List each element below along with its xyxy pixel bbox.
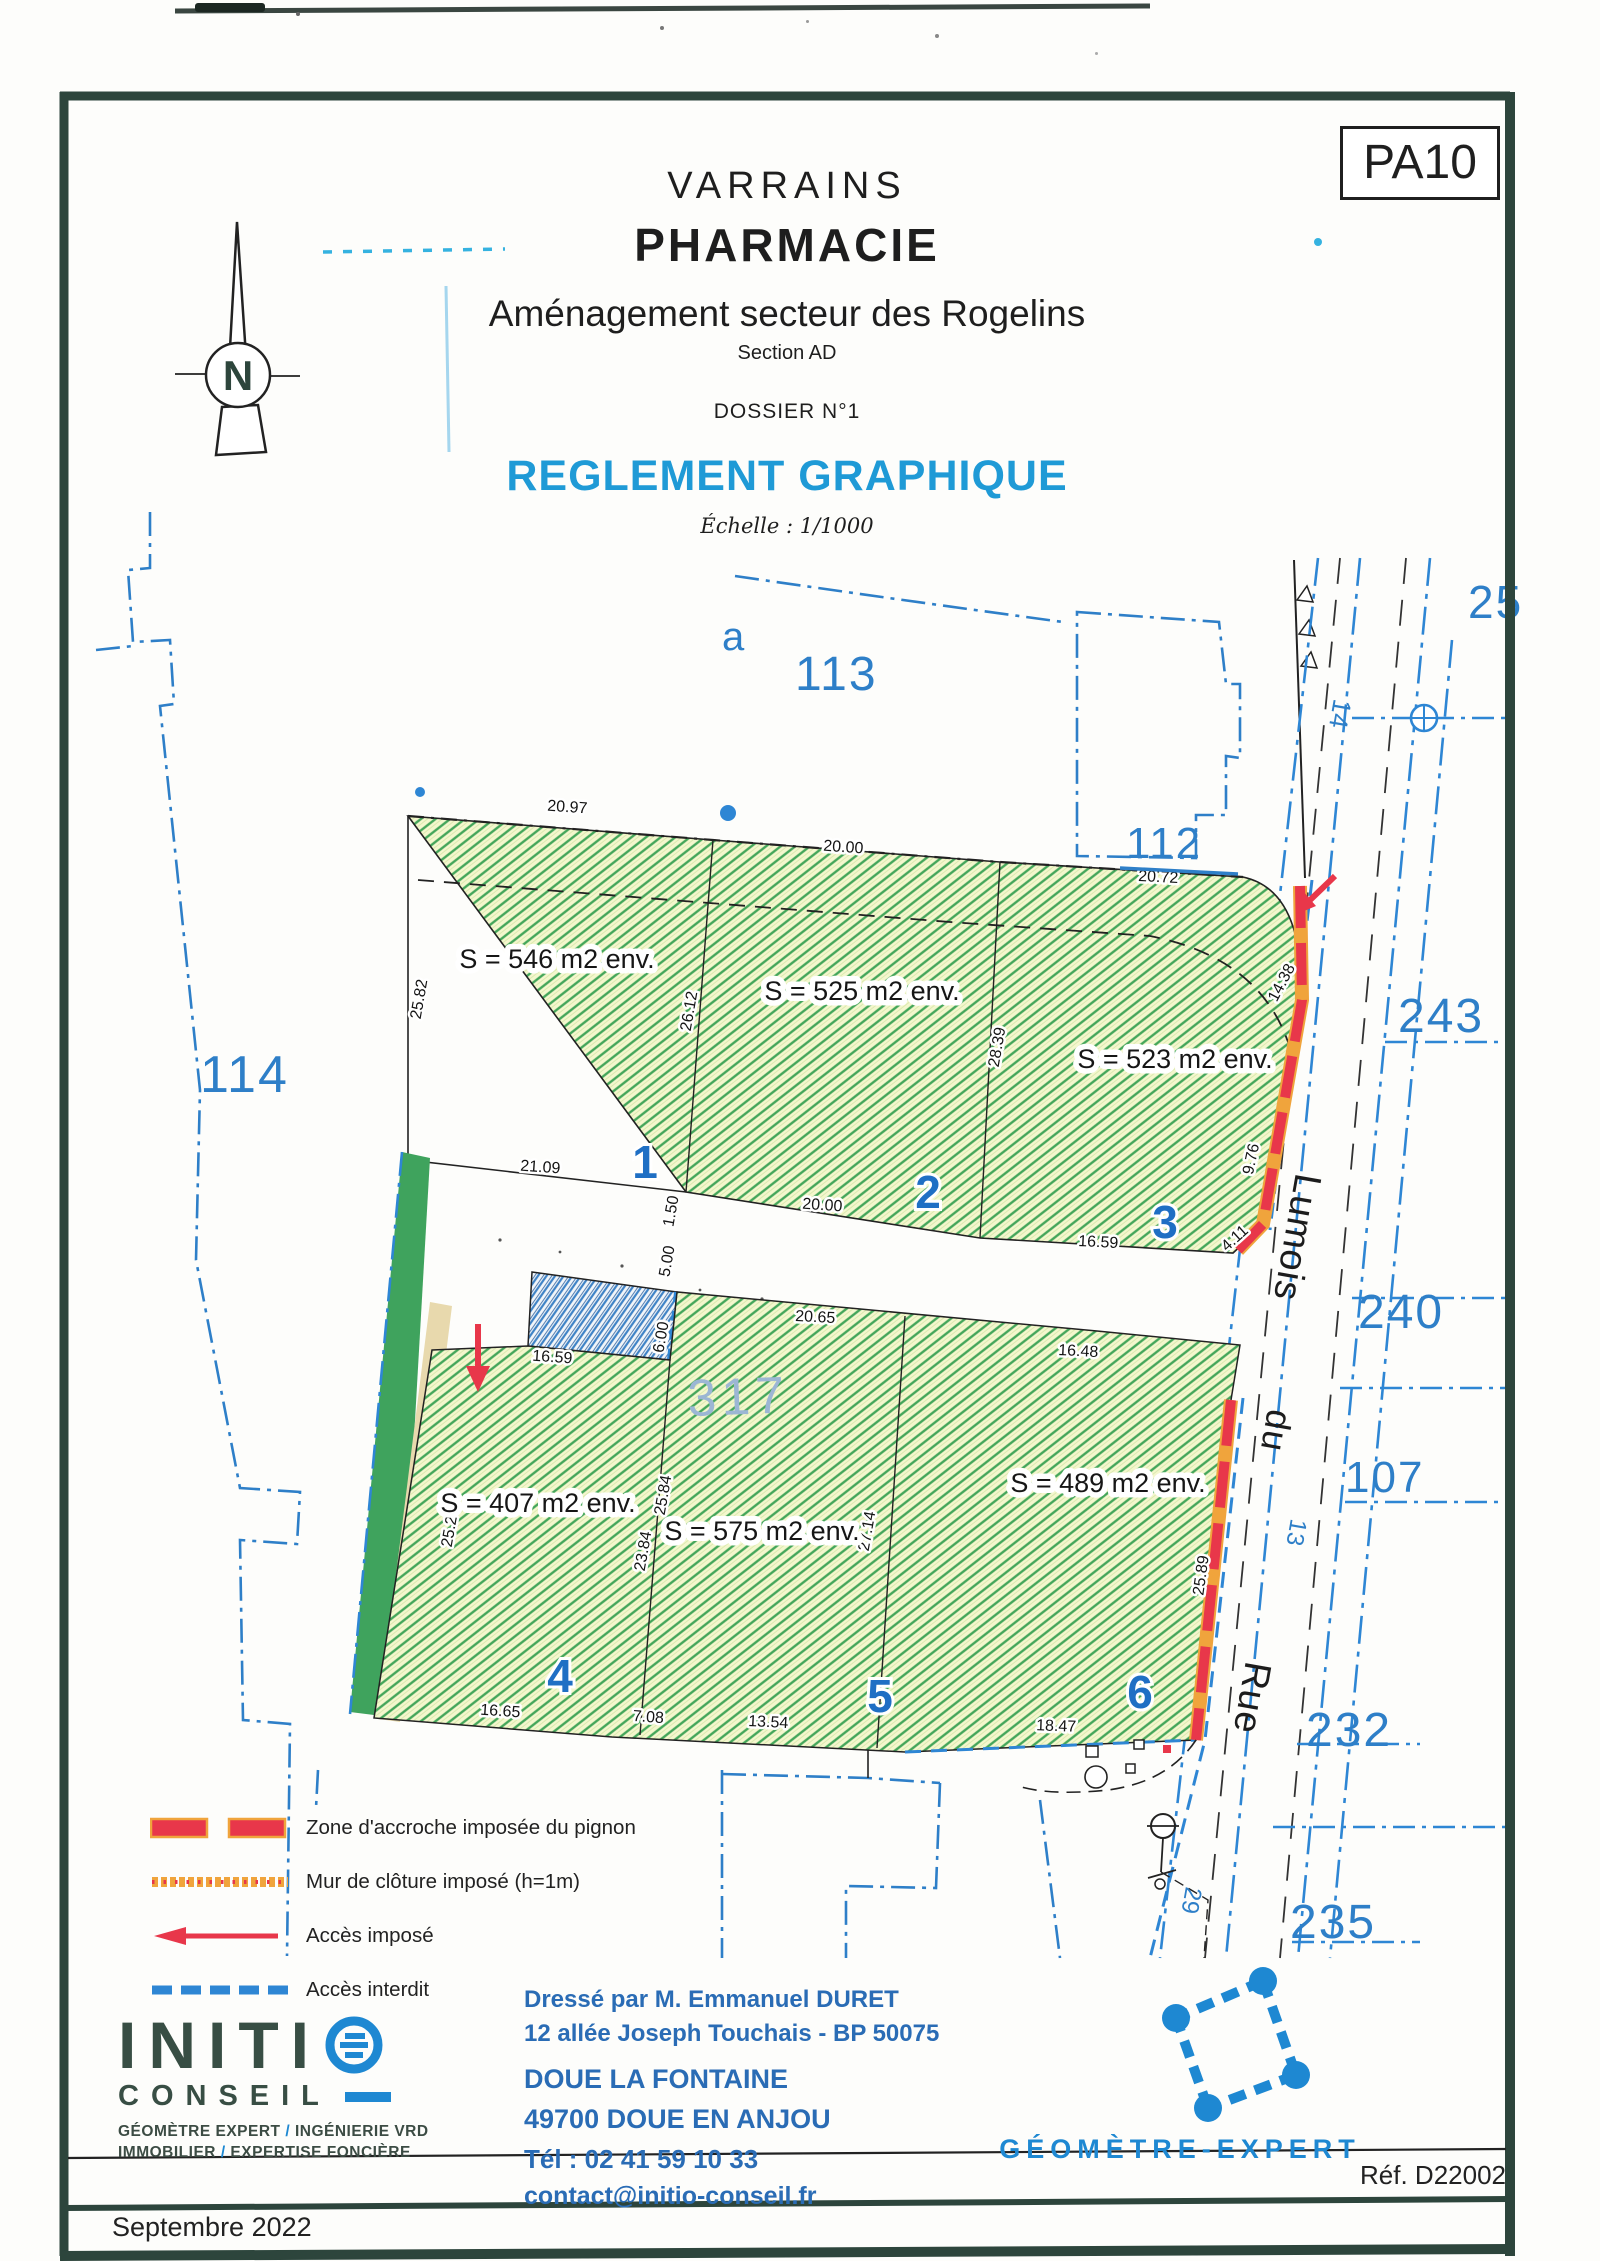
- document-title: REGLEMENT GRAPHIQUE: [64, 452, 1510, 501]
- dim: 7.08: [632, 1708, 664, 1727]
- author-line: DOUE LA FONTAINE: [524, 2064, 939, 2095]
- street-pole-icon: [1147, 1814, 1208, 1958]
- dim: 20.00: [802, 1196, 843, 1216]
- scale-label: Échelle : 1/1000: [64, 514, 1510, 538]
- lot4-area-label: S = 407 m2 env.: [440, 1488, 635, 1518]
- survey-dot: [415, 787, 425, 797]
- red-arrow-icon: [150, 1925, 290, 1947]
- dim: 20.97: [547, 798, 588, 818]
- scanned-plan-page: N: [0, 0, 1600, 2261]
- survey-dot: [720, 805, 736, 821]
- dim: 16.59: [532, 1348, 573, 1368]
- blue-dash-icon: [150, 1979, 290, 2001]
- red-dash-icon: [150, 1817, 290, 1839]
- legend-row-mur-cloture: Mur de clôture imposé (h=1m): [150, 1870, 636, 1894]
- logo-dash: [345, 2092, 391, 2102]
- parcel-240: 240: [1358, 1286, 1444, 1339]
- geometre-expert-logo: GÉOMÈTRE-EXPERT: [995, 1960, 1365, 2165]
- acces-impose-arrow-lot3: [1297, 876, 1335, 914]
- author-line: Dressé par M. Emmanuel DURET: [524, 1986, 939, 2014]
- dim: 16.59: [1078, 1233, 1119, 1252]
- legend-row-zone-accroche: Zone d'accroche imposée du pignon: [150, 1816, 636, 1840]
- scan-speck: [935, 34, 939, 38]
- lot4-number: 4: [547, 1650, 573, 1702]
- scan-speck: [806, 20, 809, 23]
- lot6-number: 6: [1127, 1666, 1153, 1718]
- commune-title: VARRAINS: [64, 165, 1510, 208]
- parcel-243: 243: [1398, 990, 1484, 1043]
- dim: 20.65: [795, 1308, 836, 1327]
- parcel-113: 113: [795, 648, 878, 701]
- legend-label: Zone d'accroche imposée du pignon: [306, 1816, 636, 1840]
- legend-row-acces-impose: Accès imposé: [150, 1924, 636, 1948]
- dim: 21.09: [520, 1158, 561, 1178]
- lot3-area-label: S = 523 m2 env.: [1077, 1044, 1272, 1074]
- dim: 20.00: [823, 838, 864, 858]
- parcel-317: 317: [686, 1366, 790, 1428]
- street-du: du: [1253, 1407, 1301, 1456]
- street-n13: 13: [1280, 1517, 1311, 1548]
- red-marker: [1163, 1745, 1171, 1753]
- legend-label: Mur de clôture imposé (h=1m): [306, 1870, 580, 1894]
- legend-label: Accès interdit: [306, 1978, 429, 2002]
- scan-speck: [660, 26, 664, 30]
- scan-speck: [1095, 52, 1098, 55]
- author-line: Tél : 02 41 59 10 33: [524, 2144, 939, 2175]
- author-email: contact@initio-conseil.fr: [524, 2182, 939, 2211]
- parcel-107: 107: [1345, 1453, 1424, 1502]
- lot3-number: 3: [1152, 1196, 1178, 1248]
- legend-label: Accès imposé: [306, 1924, 434, 1948]
- dim: 18.47: [1036, 1717, 1077, 1735]
- street-n29: 29: [1175, 1885, 1206, 1916]
- parcel-a: a: [722, 615, 746, 659]
- parcel-235: 235: [1290, 1896, 1376, 1949]
- parcel-114: 114: [200, 1046, 289, 1104]
- initio-wordmark: INITI: [118, 2012, 321, 2078]
- orange-wall-icon: [150, 1871, 290, 1893]
- subtitle: Aménagement secteur des Rogelins: [64, 293, 1510, 335]
- street-n14: 14: [1323, 697, 1358, 731]
- section-label: Section AD: [64, 342, 1510, 365]
- date-label: Septembre 2022: [112, 2212, 312, 2243]
- lot1-number: 1: [632, 1136, 658, 1188]
- reference-number: Réf. D22002: [1280, 2160, 1506, 2191]
- parcel-112: 112: [1126, 819, 1202, 868]
- dossier-label: DOSSIER N°1: [64, 400, 1510, 424]
- scan-speck: [296, 12, 300, 16]
- dim: 16.65: [480, 1702, 521, 1722]
- firm-tagline-2: IMMOBILIER / EXPERTISE FONCIÈRE: [118, 2144, 538, 2162]
- initio-o-icon: [323, 2014, 385, 2076]
- dim: 1.50: [660, 1194, 682, 1228]
- lot6-area-label: S = 489 m2 env.: [1010, 1468, 1205, 1498]
- firm-tagline-1: GÉOMÈTRE EXPERT / INGÉNIERIE VRD: [118, 2123, 538, 2141]
- project-title: PHARMACIE: [64, 218, 1510, 272]
- parcel-232: 232: [1306, 1704, 1392, 1757]
- dim: 5.00: [656, 1244, 678, 1278]
- lot1-area-label: S = 546 m2 env.: [459, 944, 654, 974]
- lot2-number: 2: [915, 1166, 941, 1218]
- dim: 25.82: [408, 978, 432, 1020]
- dim: 16.48: [1058, 1342, 1099, 1361]
- lot5-area-label: S = 575 m2 env.: [664, 1516, 859, 1546]
- lot5-number: 5: [867, 1670, 893, 1722]
- author-line: 49700 DOUE EN ANJOU: [524, 2104, 939, 2135]
- geometre-square-icon: [1093, 1960, 1323, 2125]
- conseil-wordmark: CONSEIL: [118, 2080, 331, 2113]
- author-block: Dressé par M. Emmanuel DURET 12 allée Jo…: [524, 1986, 939, 2211]
- plan-code-box: PA10: [1340, 126, 1500, 200]
- dim: 13.54: [748, 1713, 789, 1732]
- author-line: 12 allée Joseph Touchais - BP 50075: [524, 2020, 939, 2048]
- initio-logo: INITI CONSEIL GÉOMÈTRE EXPERT / INGÉNIER…: [118, 2012, 538, 2162]
- lot2-area-label: S = 525 m2 env.: [764, 976, 959, 1006]
- scan-blob: [195, 3, 265, 12]
